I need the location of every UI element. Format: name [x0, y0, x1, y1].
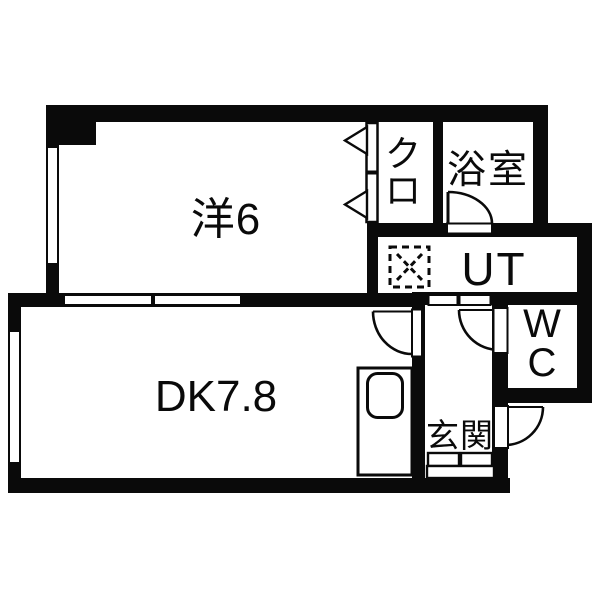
room-label-dining-kitchen: DK7.8 [116, 372, 316, 422]
ut-opening [460, 295, 491, 305]
kitchen-sink-icon [368, 374, 403, 418]
room-label-entrance-text: 玄関 [426, 417, 494, 454]
bath-door-threshold [447, 224, 492, 234]
room-label-entrance: 玄関 [410, 409, 510, 457]
room-label-toilet: W C [512, 305, 572, 383]
bath-door-arc [448, 192, 492, 223]
room-label-bathroom: 浴室 [438, 139, 538, 195]
folding-door-icon [345, 127, 367, 154]
room-label-dk-text: DK7.8 [155, 372, 277, 421]
ut-opening [429, 295, 458, 305]
washing-machine-pan-icon [390, 247, 429, 287]
closet-char-1: ク [383, 135, 423, 172]
dk-door-leaf [412, 310, 422, 357]
toilet-char-1: W [512, 305, 572, 344]
entrance-door-arc [505, 407, 543, 445]
room-label-western: 洋6 [126, 183, 326, 247]
wc-door-leaf [494, 308, 508, 353]
toilet-char-2: C [512, 344, 572, 383]
sliding-door-panel [154, 295, 241, 305]
room-label-ut-text: UT [461, 243, 526, 295]
floor-plan: 洋6 DK7.8 ク ロ 浴室 UT W C 玄関 [0, 0, 600, 600]
fixtures-layer [0, 0, 600, 600]
closet-char-2: ロ [383, 172, 423, 209]
room-label-bath-text: 浴室 [447, 149, 529, 192]
folding-door-icon [345, 191, 367, 218]
dk-door-arc [373, 312, 412, 355]
sliding-door-panel [64, 295, 152, 305]
room-label-utility: UT [444, 242, 544, 296]
room-label-western-text: 洋6 [191, 195, 261, 244]
entrance-step [427, 466, 494, 478]
room-label-closet: ク ロ [383, 135, 423, 209]
